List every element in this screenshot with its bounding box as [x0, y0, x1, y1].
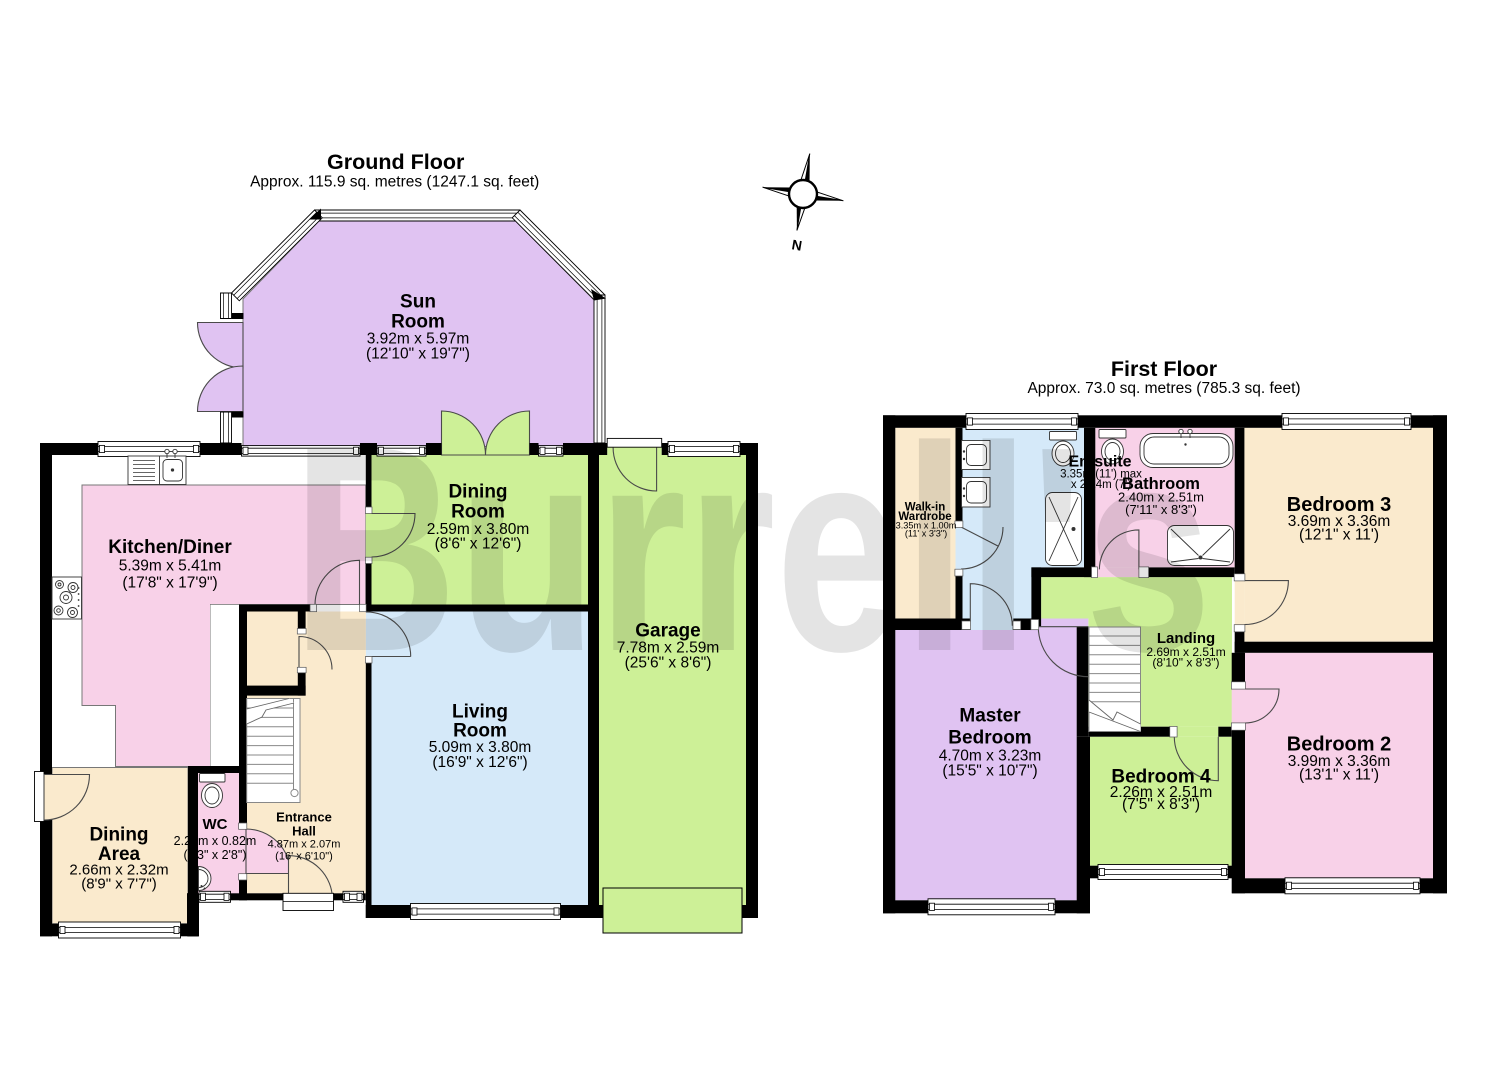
svg-text:Hall: Hall — [292, 824, 316, 839]
svg-text:(7'3" x 2'8"): (7'3" x 2'8") — [184, 848, 247, 862]
svg-text:(15'5" x 10'7"): (15'5" x 10'7") — [942, 763, 1037, 780]
svg-text:Room: Room — [391, 312, 445, 333]
svg-text:WC: WC — [203, 816, 228, 833]
svg-text:(16' x 6'10"): (16' x 6'10") — [275, 851, 333, 863]
svg-text:Kitchen/Diner: Kitchen/Diner — [108, 537, 232, 558]
svg-text:(8'9" x 7'7"): (8'9" x 7'7") — [81, 876, 157, 893]
svg-text:(7'5" x 8'3"): (7'5" x 8'3") — [1122, 796, 1200, 813]
svg-text:Dining: Dining — [89, 825, 148, 846]
svg-text:Approx. 73.0 sq. metres (785.3: Approx. 73.0 sq. metres (785.3 sq. feet) — [1027, 380, 1300, 397]
svg-text:(13'1" x 11'): (13'1" x 11') — [1299, 767, 1379, 784]
svg-text:(17'8" x 17'9"): (17'8" x 17'9") — [122, 575, 217, 592]
svg-text:2.21m x 0.82m: 2.21m x 0.82m — [174, 834, 257, 848]
svg-text:Bedroom: Bedroom — [948, 728, 1031, 749]
svg-text:Ground Floor: Ground Floor — [327, 150, 465, 174]
svg-text:5.39m x 5.41m: 5.39m x 5.41m — [119, 558, 222, 575]
svg-text:First Floor: First Floor — [1111, 357, 1218, 381]
svg-text:Burrell's: Burrell's — [292, 386, 1212, 712]
svg-text:(12'1" x 11'): (12'1" x 11') — [1299, 527, 1379, 544]
svg-text:Approx. 115.9 sq. metres (1247: Approx. 115.9 sq. metres (1247.1 sq. fee… — [250, 174, 539, 191]
svg-text:4.87m x 2.07m: 4.87m x 2.07m — [268, 839, 341, 851]
svg-text:(16'9" x 12'6"): (16'9" x 12'6") — [432, 754, 527, 771]
svg-text:Entrance: Entrance — [276, 810, 332, 825]
svg-text:(12'10" x 19'7"): (12'10" x 19'7") — [366, 346, 470, 363]
svg-text:Sun: Sun — [400, 292, 436, 313]
